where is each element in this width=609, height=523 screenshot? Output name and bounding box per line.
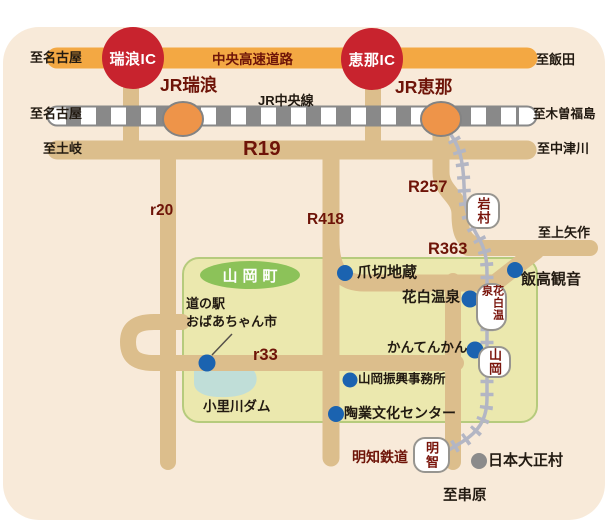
jr-ena-station-marker	[421, 102, 461, 136]
nihon-taishomura-label: 日本大正村	[488, 453, 563, 468]
akechi-railway-label: 明知鉄道	[352, 450, 408, 464]
nihon-taishomura-dot	[471, 453, 487, 469]
akechi-station-label: 明智	[425, 441, 438, 469]
kantenkan-label: かんてんかん	[387, 341, 467, 355]
to-kisofukushima-label: 至木曽福島	[533, 108, 596, 121]
to-toki-label: 至土岐	[43, 142, 82, 155]
ena-ic-badge: 恵那IC	[341, 28, 403, 90]
r418-label: R418	[307, 212, 344, 228]
yamaoka-town-badge: 山岡町	[200, 261, 300, 289]
mizunami-ic-badge: 瑞浪IC	[102, 27, 164, 89]
iitaka-kannon-label: 飯高観音	[521, 272, 581, 287]
togyo-bunka-center-label: 陶業文化センター	[344, 406, 456, 420]
jr-chuo-line-label: JR中央線	[258, 94, 314, 107]
r33-label: r33	[253, 347, 278, 364]
r363-label: R363	[428, 241, 467, 258]
access-map: 瑞浪IC 恵那IC 山岡町 岩村 花白温泉 山岡 明智 至名古屋 中央高速道路 …	[0, 0, 609, 523]
map-graphics	[0, 0, 609, 523]
to-nakatsugawa-label: 至中津川	[537, 142, 589, 155]
to-nagoya-expressway-label: 至名古屋	[30, 51, 82, 64]
to-iida-label: 至飯田	[536, 53, 575, 66]
chuo-expressway-label: 中央高速道路	[212, 53, 293, 67]
iwamura-station-label: 岩村	[477, 197, 490, 225]
iwamura-station-box: 岩村	[466, 193, 500, 229]
to-kushihara-label: 至串原	[443, 489, 487, 504]
r19-label: R19	[243, 139, 281, 160]
tsumekiri-jizo-label: 爪切地蔵	[357, 265, 417, 280]
akechi-station-box: 明智	[413, 437, 450, 473]
to-kamiyahagi-label: 至上矢作	[538, 226, 590, 239]
yamaoka-town-label: 山岡町	[217, 265, 282, 286]
to-nagoya-jr-label: 至名古屋	[30, 107, 82, 120]
tsumekiri-jizo-dot	[337, 265, 353, 281]
hanashiro-onsen-station-box: 花白温泉	[476, 283, 507, 331]
r20-label: r20	[150, 203, 173, 219]
michinoeki-label-line2: おばあちゃん市	[186, 313, 277, 331]
togyo-bunka-center-dot	[328, 406, 344, 422]
jr-mizunami-station-marker	[163, 102, 203, 136]
yamaoka-station-box: 山岡	[478, 346, 511, 378]
yamaoka-shinko-office-label: 山岡振興事務所	[358, 373, 446, 386]
hanashiro-onsen-label: 花白温泉	[402, 291, 460, 306]
michinoeki-dot	[199, 355, 216, 372]
mizunami-ic-label: 瑞浪IC	[109, 48, 156, 69]
michinoeki-label: 道の駅 おばあちゃん市	[186, 295, 277, 330]
ena-ic-label: 恵那IC	[348, 49, 395, 70]
hanashiro-onsen-station-label: 花白温泉	[481, 285, 503, 329]
r257-label: R257	[408, 179, 447, 196]
jr-ena-label: JR恵那	[395, 79, 452, 97]
michinoeki-label-line1: 道の駅	[186, 295, 277, 313]
yamaoka-shinko-office-dot	[343, 373, 358, 388]
jr-mizunami-label: JR瑞浪	[160, 77, 217, 95]
origawa-dam-label: 小里川ダム	[203, 400, 271, 414]
yamaoka-station-label: 山岡	[488, 348, 501, 376]
